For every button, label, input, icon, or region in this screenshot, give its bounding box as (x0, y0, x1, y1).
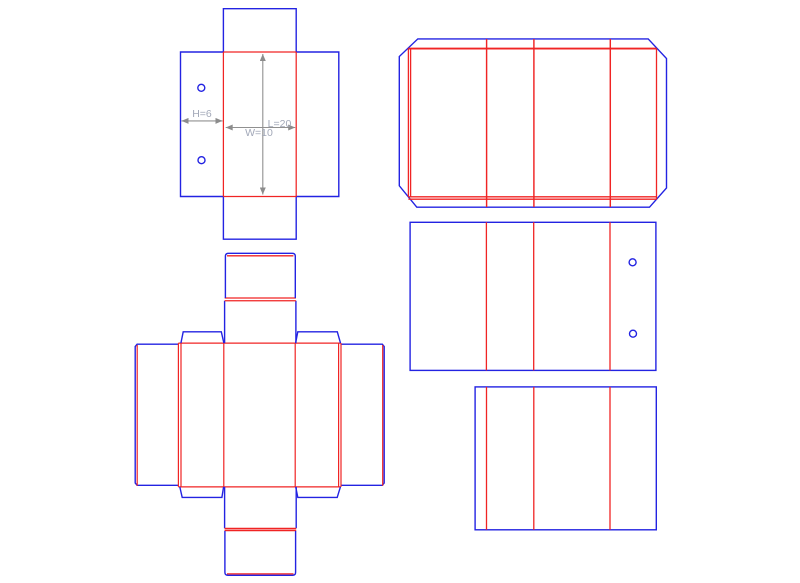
svg-text:H=6: H=6 (192, 108, 212, 120)
svg-text:W=10: W=10 (245, 127, 273, 139)
